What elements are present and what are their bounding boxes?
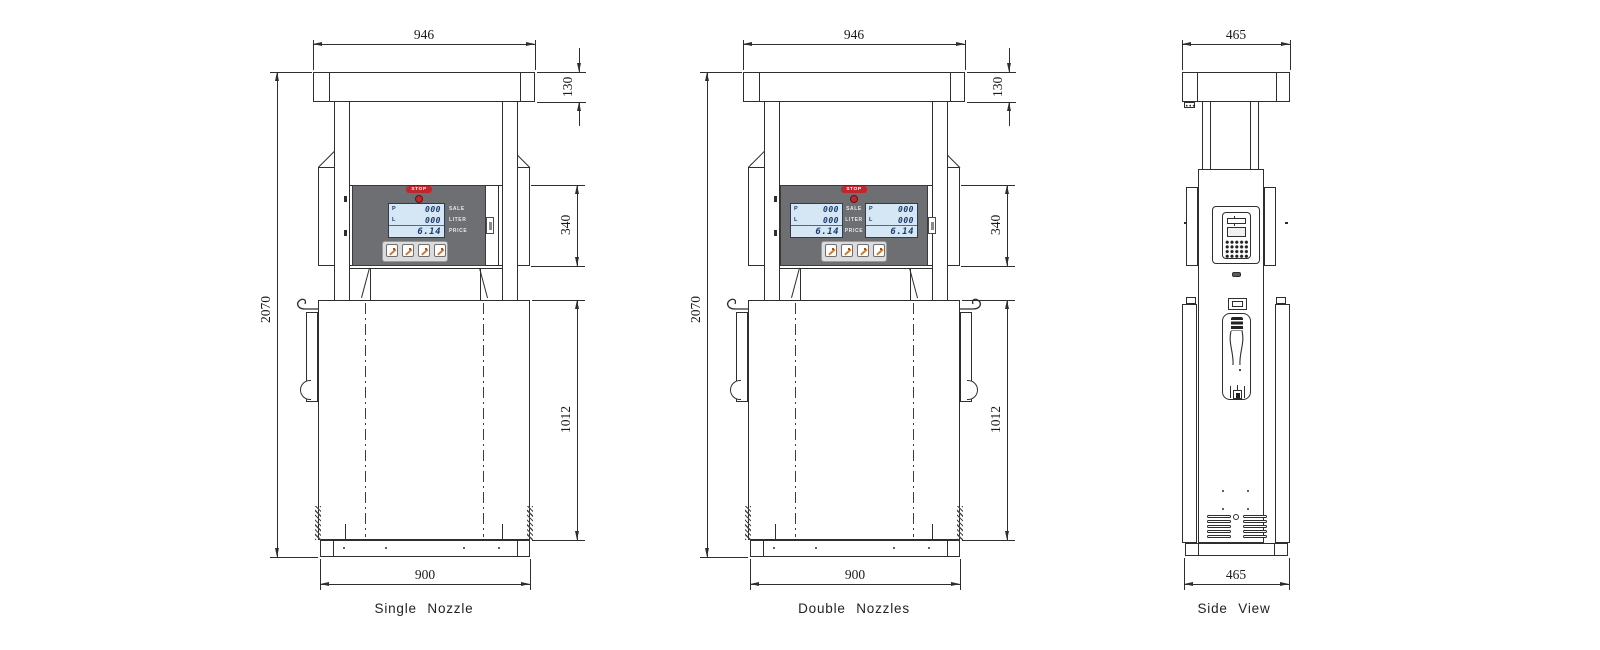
- extension-line: [700, 557, 748, 558]
- dim-line-1012: [577, 300, 578, 540]
- lcd-row-sale: P000: [791, 204, 842, 215]
- nozzle-select-button[interactable]: [402, 244, 414, 257]
- panel-dot: [1222, 508, 1224, 510]
- corner-hatch: [315, 506, 321, 540]
- stop-indicator-light: [415, 195, 423, 203]
- dim-text-900: 900: [395, 568, 455, 582]
- cabinet: [748, 300, 960, 540]
- neck-line: [1210, 102, 1211, 169]
- neck-line: [1258, 102, 1259, 169]
- base-cap-line: [333, 541, 334, 556]
- price-label: PRICE: [843, 228, 865, 234]
- hinge-mark: [774, 230, 777, 236]
- keypad-screen: [1227, 227, 1246, 237]
- nozzle-select-button[interactable]: [418, 244, 430, 257]
- dim-text-946: 946: [828, 28, 880, 42]
- base-cap-line: [763, 541, 764, 556]
- dim-text-130: 130: [560, 70, 575, 104]
- nozzle-select-button[interactable]: [873, 244, 885, 257]
- dim-text-900: 900: [825, 568, 885, 582]
- side-rail: [1182, 304, 1197, 543]
- stop-badge: STOP: [841, 186, 867, 193]
- vent-louver: [1243, 530, 1267, 533]
- transition-line: [800, 268, 801, 300]
- rail-tab: [1186, 297, 1196, 304]
- dim-line-130: [1009, 48, 1010, 72]
- sale-label: SALE: [843, 206, 865, 212]
- tab-mark: [489, 222, 492, 230]
- dim-line-465-top: [1182, 44, 1290, 45]
- sale-label: SALE: [449, 206, 473, 212]
- panel-side-tab: [486, 217, 494, 234]
- dim-text-130: 130: [990, 70, 1005, 104]
- canopy-cap-line: [1197, 73, 1198, 101]
- frame-foot-line: [345, 524, 346, 540]
- hose-hook-icon: [292, 296, 320, 312]
- nozzle-select-button[interactable]: [841, 244, 853, 257]
- cabinet: [318, 300, 530, 540]
- side-wing: [1264, 187, 1276, 266]
- holster-icon-bar: [1230, 386, 1231, 398]
- frame-foot-line: [775, 524, 776, 540]
- dim-text-340: 340: [988, 208, 1003, 242]
- figure-caption: Single Nozzle: [344, 601, 504, 616]
- corner-hatch: [527, 506, 533, 540]
- dim-line-946: [743, 44, 965, 45]
- frame-foot-line: [502, 524, 503, 540]
- card-slot: [1227, 218, 1246, 224]
- vent-louver: [1207, 535, 1231, 538]
- transition-brace: [791, 268, 800, 298]
- hose-hook-icon: [722, 296, 750, 312]
- vent-louver: [1207, 515, 1231, 518]
- panel-side-tab: [928, 217, 936, 234]
- lcd-row-liter: L000: [791, 215, 842, 226]
- holster-icon-bar: [1244, 386, 1245, 398]
- vent-louver: [1243, 535, 1267, 538]
- dim-line-946: [313, 44, 535, 45]
- post-right: [932, 102, 948, 300]
- center-line: [483, 303, 484, 537]
- lcd-row-liter: L000: [866, 215, 917, 226]
- nozzle-select-button[interactable]: [386, 244, 398, 257]
- transition-brace: [361, 268, 370, 298]
- holster-bracket-inner: [1232, 301, 1243, 307]
- dim-line-130: [1009, 102, 1010, 126]
- center-hole: [1233, 514, 1239, 520]
- canopy: [313, 72, 535, 102]
- liter-label: LITER: [843, 217, 865, 223]
- dim-line-465-bottom: [1184, 584, 1289, 585]
- dim-text-2070: 2070: [258, 286, 273, 334]
- lcd-row-liter: L000: [389, 215, 444, 226]
- side-rail: [1275, 304, 1290, 543]
- base-foot: [1185, 543, 1199, 556]
- canopy: [1182, 72, 1290, 102]
- hinge-mark: [774, 196, 777, 202]
- dim-line-340: [1007, 185, 1008, 266]
- base-foot: [1274, 543, 1288, 556]
- panel-dot: [1247, 490, 1249, 492]
- nozzle-boot: [730, 380, 741, 400]
- panel-dot: [1247, 508, 1249, 510]
- extension-line: [531, 266, 585, 267]
- canopy-cap-line: [950, 73, 951, 101]
- dim-line-900: [320, 584, 530, 585]
- dim-line-130: [579, 102, 580, 126]
- extension-line: [965, 40, 966, 70]
- vent-louver: [1243, 525, 1267, 528]
- canopy-cap-line: [329, 73, 330, 101]
- corner-hatch: [745, 506, 751, 540]
- nozzle-body-icon: [1228, 331, 1245, 367]
- dim-line-2070: [707, 72, 708, 557]
- nozzle-select-button[interactable]: [857, 244, 869, 257]
- lcd-row-price: 6.14: [791, 225, 842, 237]
- center-line: [795, 303, 796, 537]
- liter-label: LITER: [449, 217, 473, 223]
- neck-line: [1250, 102, 1251, 169]
- base: [1190, 543, 1283, 556]
- lcd-row-sale: P000: [866, 204, 917, 215]
- indicator-pill: [1232, 272, 1241, 277]
- figure-caption: Side View: [1164, 601, 1304, 616]
- wing-tick: [1184, 222, 1187, 224]
- lcd-display-left: P000 L000 6.14: [790, 203, 843, 238]
- center-line: [913, 303, 914, 537]
- holster-dot: [1239, 369, 1241, 371]
- lcd-display: P000 L000 6.14: [388, 203, 445, 238]
- figure-caption: Double Nozzles: [769, 601, 939, 616]
- extension-line: [530, 559, 531, 590]
- lcd-display-right: P000 L000 6.14: [865, 203, 918, 238]
- post-left: [334, 102, 350, 300]
- canopy-cap-line: [759, 73, 760, 101]
- stop-indicator-light: [850, 195, 858, 203]
- dim-line-2070: [277, 72, 278, 557]
- canopy-cap-line: [520, 73, 521, 101]
- head-inner-line: [498, 185, 499, 266]
- dim-text-1012: 1012: [558, 398, 573, 442]
- nozzle-grip: [1231, 317, 1243, 331]
- frame-foot-line: [932, 524, 933, 540]
- vent-louver: [1243, 520, 1267, 523]
- dim-line-340: [577, 185, 578, 266]
- dim-line-900: [750, 584, 960, 585]
- extension-line: [532, 540, 585, 541]
- keypad-keys[interactable]: [1225, 240, 1249, 259]
- tab-mark: [931, 222, 934, 230]
- price-label: PRICE: [449, 228, 473, 234]
- extension-line: [1290, 40, 1291, 70]
- nozzle-select-button[interactable]: [434, 244, 446, 257]
- canopy-cap-line: [1276, 73, 1277, 101]
- hose-hook-icon: [958, 296, 986, 312]
- extension-line: [960, 559, 961, 590]
- post-left: [764, 102, 780, 300]
- post-right: [502, 102, 518, 300]
- dim-text-465-bottom: 465: [1210, 568, 1262, 582]
- vent-louver: [1243, 515, 1267, 518]
- wing-tick: [1285, 222, 1288, 224]
- extension-line: [1289, 558, 1290, 590]
- canopy: [743, 72, 965, 102]
- nozzle-boot: [967, 380, 978, 400]
- technical-drawing-canvas: STOP P000 L000 6.14 SALE LITER PRICE: [0, 0, 1600, 650]
- lcd-row-price: 6.14: [866, 225, 917, 237]
- rail-tab: [1276, 297, 1286, 304]
- stop-badge: STOP: [406, 186, 432, 193]
- extension-line: [270, 557, 318, 558]
- dim-text-340: 340: [558, 208, 573, 242]
- dim-line-1012: [1007, 300, 1008, 540]
- vent-louver: [1207, 530, 1231, 533]
- vent-louver: [1207, 525, 1231, 528]
- base-cap-line: [517, 541, 518, 556]
- holster-icon-fill: [1236, 393, 1240, 398]
- vent-louver: [1207, 520, 1231, 523]
- lcd-row-price: 6.14: [389, 225, 444, 237]
- canopy-light-box: [1184, 102, 1195, 108]
- dim-text-2070: 2070: [688, 286, 703, 334]
- extension-line: [961, 266, 1015, 267]
- extension-line: [962, 540, 1015, 541]
- corner-hatch: [957, 506, 963, 540]
- lcd-row-sale: P000: [389, 204, 444, 215]
- dim-line-130: [579, 48, 580, 72]
- transition-line: [370, 268, 371, 300]
- panel-dot: [1222, 490, 1224, 492]
- nozzle-select-button[interactable]: [825, 244, 837, 257]
- side-wing: [1186, 187, 1198, 266]
- center-line: [365, 303, 366, 537]
- hinge-mark: [344, 230, 347, 236]
- hinge-mark: [344, 196, 347, 202]
- nozzle-boot: [300, 380, 311, 400]
- dim-text-946: 946: [398, 28, 450, 42]
- extension-line: [535, 40, 536, 70]
- base-cap-line: [947, 541, 948, 556]
- dim-text-465-top: 465: [1210, 28, 1262, 42]
- neck-line: [1202, 102, 1203, 169]
- dim-text-1012: 1012: [988, 398, 1003, 442]
